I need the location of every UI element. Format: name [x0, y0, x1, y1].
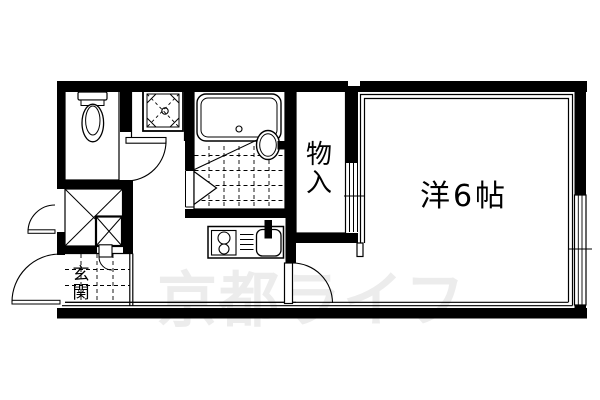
- toilet-door: [126, 138, 166, 182]
- watermark-text: 京都ライフ: [157, 266, 467, 336]
- pipe-space-door: [99, 245, 112, 270]
- room-label-closet: 物入: [306, 140, 332, 199]
- right-window: [568, 195, 592, 305]
- stove: [212, 231, 237, 256]
- pipe-space-box: [96, 217, 122, 247]
- heater-handle: [278, 141, 293, 150]
- floor-plan-drawing: 京都ライフ: [0, 0, 600, 400]
- room-label-entrance: 玄関: [73, 265, 90, 304]
- floor-plan: 京都ライフ: [0, 0, 600, 400]
- toilet: [78, 92, 107, 142]
- front-door: [12, 254, 60, 304]
- laundry-nook: [132, 90, 185, 142]
- kitchen-faucet: [265, 220, 273, 239]
- closet-sliding-door: [344, 163, 365, 232]
- washing-machine-pan: [143, 90, 183, 131]
- doorway-jamb: [357, 243, 363, 257]
- bath-deck-line: [195, 140, 258, 170]
- kitchen-counter: [208, 220, 284, 258]
- meter-box-door: [28, 205, 55, 233]
- room-label-western: 洋6帖: [420, 179, 508, 214]
- bath-folding-door: [186, 171, 217, 208]
